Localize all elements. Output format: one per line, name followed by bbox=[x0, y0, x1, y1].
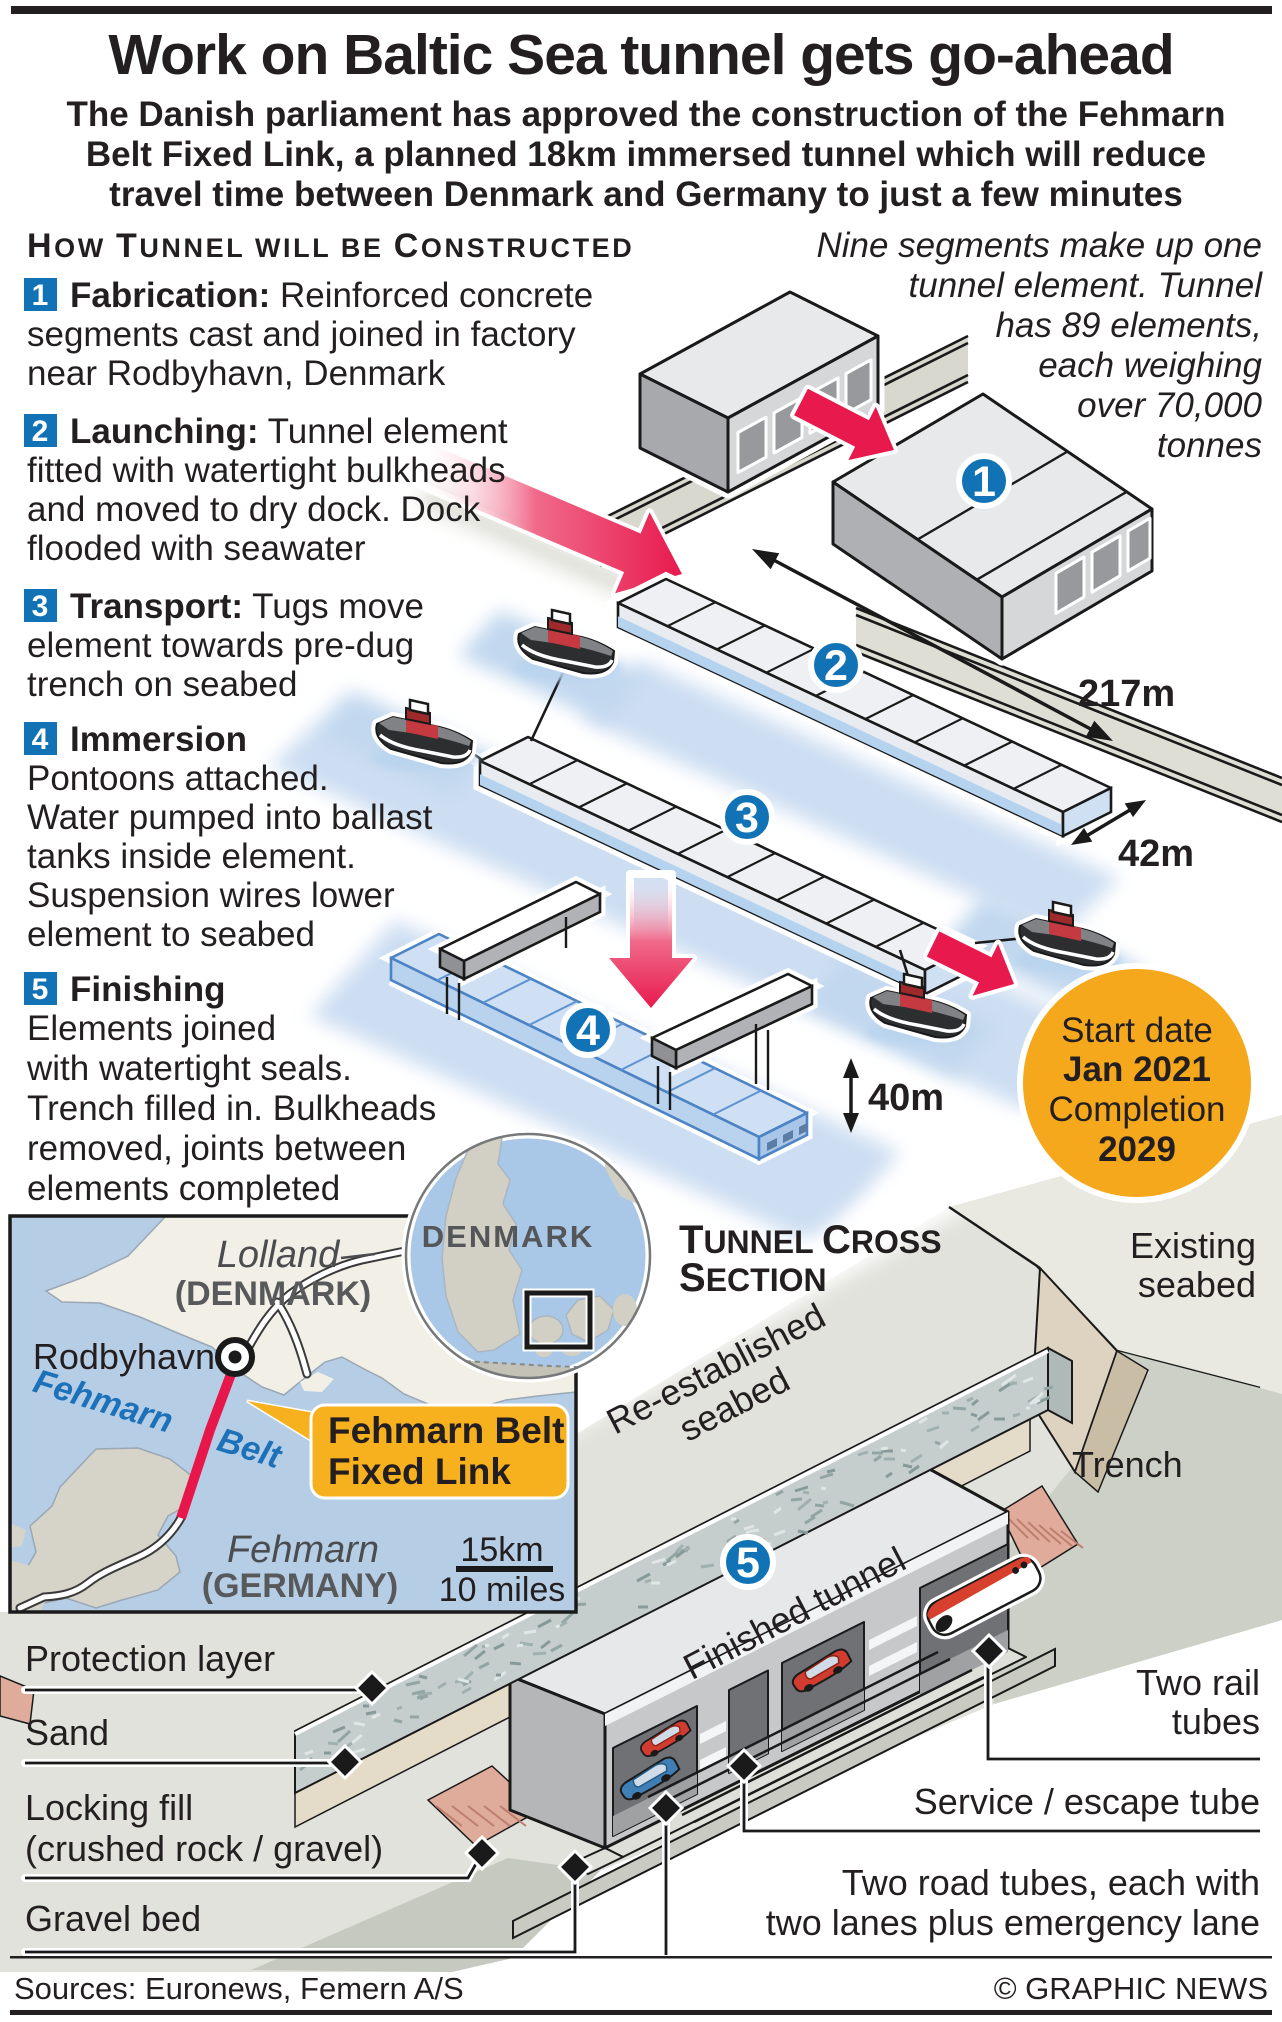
svg-text:removed, joints between: removed, joints between bbox=[27, 1129, 406, 1168]
svg-text:fitted with watertight bulkhea: fitted with watertight bulkheads bbox=[27, 451, 506, 490]
svg-text:42m: 42m bbox=[1118, 833, 1194, 875]
svg-text:Completion: Completion bbox=[1048, 1090, 1225, 1129]
svg-text:Elements joined: Elements joined bbox=[27, 1009, 276, 1048]
svg-text:4: 4 bbox=[576, 1007, 600, 1055]
svg-text:Jan 2021: Jan 2021 bbox=[1063, 1050, 1211, 1089]
svg-text:(DENMARK): (DENMARK) bbox=[175, 1275, 371, 1313]
svg-text:217m: 217m bbox=[1078, 673, 1175, 715]
svg-text:travel time between Denmark an: travel time between Denmark and Germany … bbox=[109, 175, 1183, 214]
svg-text:near Rodbyhavn, Denmark: near Rodbyhavn, Denmark bbox=[27, 354, 446, 393]
svg-text:Two rail: Two rail bbox=[1136, 1662, 1260, 1703]
svg-text:The Danish parliament has appr: The Danish parliament has approved the c… bbox=[66, 95, 1225, 134]
svg-text:Work on Baltic Sea tunnel gets: Work on Baltic Sea tunnel gets go-ahead bbox=[108, 23, 1173, 87]
svg-text:Protection layer: Protection layer bbox=[25, 1638, 275, 1679]
svg-text:Lolland: Lolland bbox=[217, 1234, 341, 1276]
svg-text:trench on seabed: trench on seabed bbox=[27, 665, 297, 704]
svg-text:Gravel bed: Gravel bed bbox=[25, 1898, 201, 1939]
svg-text:Start date: Start date bbox=[1061, 1011, 1213, 1050]
svg-text:and moved to dry dock. Dock: and moved to dry dock. Dock bbox=[27, 490, 481, 529]
svg-text:15km: 15km bbox=[460, 1531, 543, 1569]
svg-text:element towards pre-dug: element towards pre-dug bbox=[27, 626, 414, 665]
svg-text:element to seabed: element to seabed bbox=[27, 915, 315, 954]
svg-text:Locking fill: Locking fill bbox=[25, 1787, 193, 1828]
svg-text:Sand: Sand bbox=[25, 1712, 109, 1753]
svg-text:Sources: Euronews, Femern A/S: Sources: Euronews, Femern A/S bbox=[14, 1971, 464, 2006]
svg-text:Nine segments make up one: Nine segments make up one bbox=[816, 226, 1262, 265]
svg-text:elements completed: elements completed bbox=[27, 1169, 340, 1208]
svg-text:DENMARK: DENMARK bbox=[422, 1219, 594, 1254]
svg-text:tunnel element. Tunnel: tunnel element. Tunnel bbox=[909, 266, 1264, 305]
svg-text:seabed: seabed bbox=[1138, 1264, 1256, 1305]
svg-text:(GERMANY): (GERMANY) bbox=[202, 1567, 398, 1605]
svg-text:5: 5 bbox=[32, 973, 49, 1006]
svg-text:Transport: Tugs move: Transport: Tugs move bbox=[70, 587, 424, 626]
svg-text:HOW TUNNEL WILL BE CONSTRUCTED: HOW TUNNEL WILL BE CONSTRUCTED bbox=[27, 227, 634, 265]
svg-text:has 89 elements,: has 89 elements, bbox=[995, 306, 1262, 345]
svg-text:Trench: Trench bbox=[1072, 1444, 1183, 1485]
svg-text:Immersion: Immersion bbox=[70, 720, 247, 759]
svg-text:Fehmarn Belt: Fehmarn Belt bbox=[328, 1410, 564, 1451]
svg-text:tubes: tubes bbox=[1172, 1701, 1260, 1742]
svg-text:Pontoons attached.: Pontoons attached. bbox=[27, 759, 329, 798]
svg-text:Trench filled in. Bulkheads: Trench filled in. Bulkheads bbox=[27, 1089, 436, 1128]
svg-text:over 70,000: over 70,000 bbox=[1077, 386, 1262, 425]
svg-text:1: 1 bbox=[972, 458, 996, 506]
svg-text:tonnes: tonnes bbox=[1157, 426, 1262, 465]
svg-text:2: 2 bbox=[824, 642, 848, 690]
svg-text:Service / escape tube: Service / escape tube bbox=[914, 1781, 1260, 1822]
svg-text:1: 1 bbox=[32, 279, 49, 312]
svg-text:Fabrication: Reinforced concre: Fabrication: Reinforced concrete bbox=[70, 276, 593, 315]
svg-text:with watertight seals.: with watertight seals. bbox=[26, 1049, 352, 1088]
svg-text:4: 4 bbox=[32, 723, 49, 756]
svg-text:TUNNEL CROSS: TUNNEL CROSS bbox=[679, 1218, 942, 1262]
svg-text:Fehmarn: Fehmarn bbox=[227, 1529, 379, 1571]
svg-text:each weighing: each weighing bbox=[1038, 346, 1262, 385]
svg-text:Water pumped into ballast: Water pumped into ballast bbox=[27, 798, 433, 837]
svg-text:Finishing: Finishing bbox=[70, 970, 226, 1009]
svg-text:2: 2 bbox=[32, 415, 49, 448]
svg-text:Belt Fixed Link, a planned 18k: Belt Fixed Link, a planned 18km immersed… bbox=[86, 135, 1206, 174]
svg-text:(crushed rock / gravel): (crushed rock / gravel) bbox=[25, 1828, 383, 1869]
svg-text:SECTION: SECTION bbox=[679, 1256, 827, 1300]
svg-text:Existing: Existing bbox=[1130, 1225, 1256, 1266]
svg-text:3: 3 bbox=[735, 794, 759, 842]
svg-text:two lanes plus emergency lane: two lanes plus emergency lane bbox=[766, 1902, 1260, 1943]
svg-text:40m: 40m bbox=[868, 1077, 944, 1119]
svg-text:© GRAPHIC NEWS: © GRAPHIC NEWS bbox=[994, 1971, 1268, 2006]
svg-text:Two road tubes, each with: Two road tubes, each with bbox=[842, 1862, 1260, 1903]
svg-text:3: 3 bbox=[32, 590, 49, 623]
svg-text:Fixed Link: Fixed Link bbox=[328, 1451, 511, 1492]
svg-text:5: 5 bbox=[736, 1539, 760, 1587]
svg-text:2029: 2029 bbox=[1098, 1130, 1176, 1169]
svg-text:Suspension wires lower: Suspension wires lower bbox=[27, 876, 395, 915]
svg-text:flooded with seawater: flooded with seawater bbox=[27, 529, 366, 568]
svg-text:tanks inside element.: tanks inside element. bbox=[27, 837, 356, 876]
svg-text:10 miles: 10 miles bbox=[439, 1571, 566, 1609]
svg-text:segments cast and joined in fa: segments cast and joined in factory bbox=[27, 315, 576, 354]
svg-text:Launching: Tunnel element: Launching: Tunnel element bbox=[70, 412, 508, 451]
